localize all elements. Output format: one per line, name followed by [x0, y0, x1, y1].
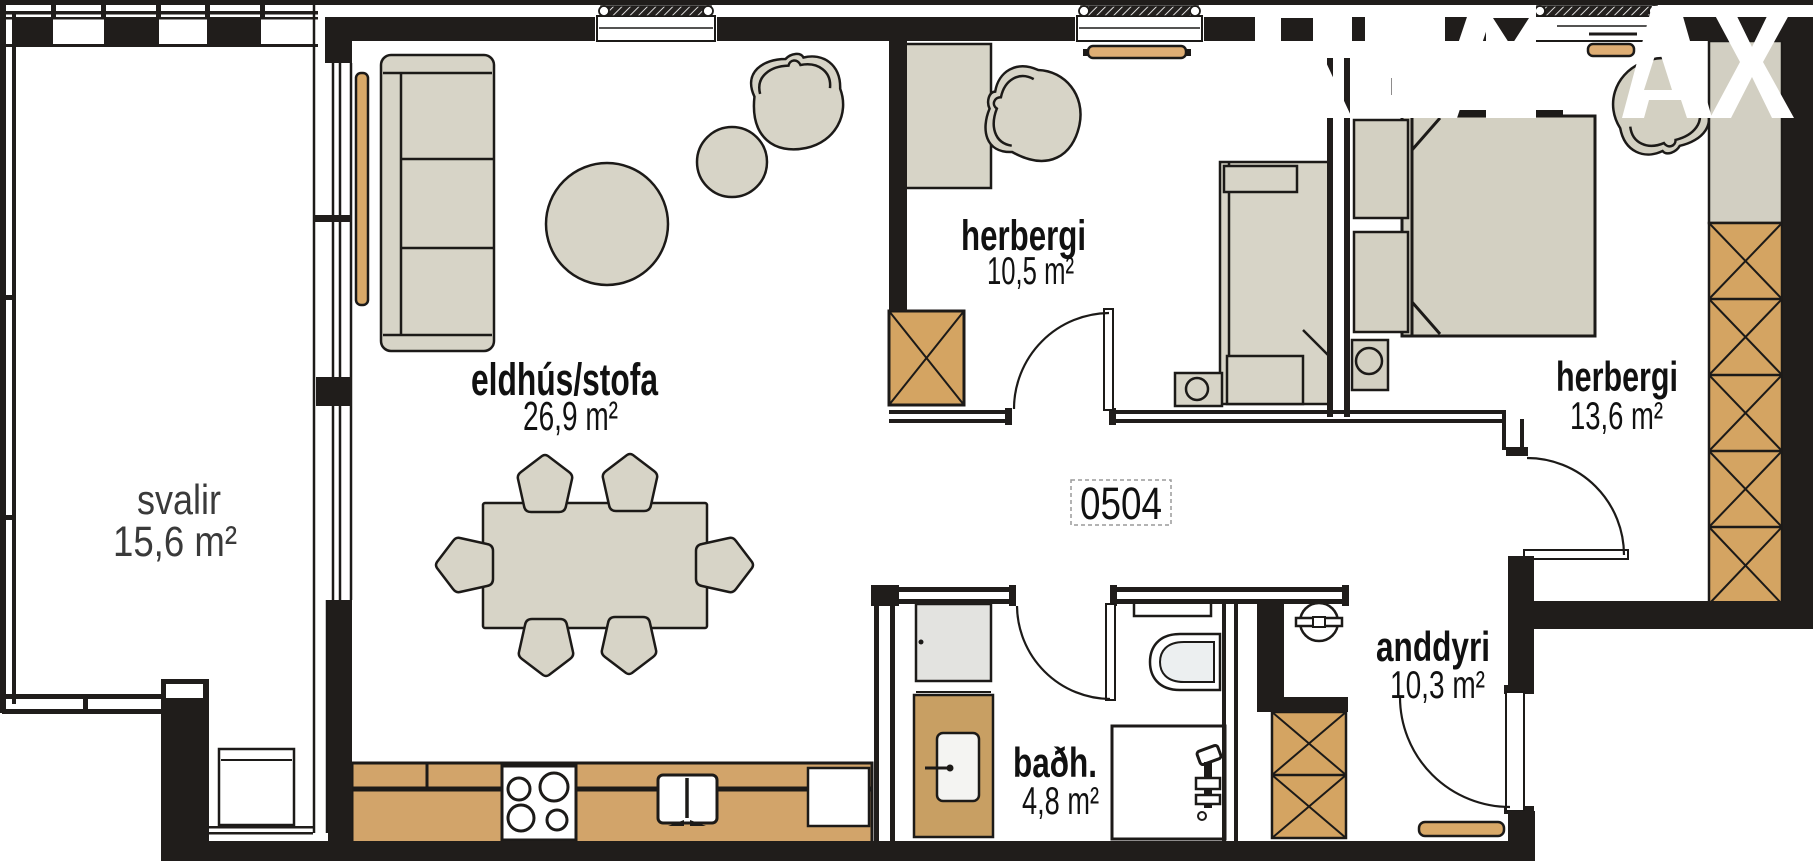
svg-text:0504: 0504 — [1080, 478, 1162, 529]
svg-text:10,5 m²: 10,5 m² — [987, 250, 1074, 293]
svg-text:13,6 m²: 13,6 m² — [1570, 395, 1663, 438]
svg-text:anddyri: anddyri — [1376, 623, 1490, 670]
svg-text:10,3 m²: 10,3 m² — [1390, 664, 1485, 707]
svg-text:15,6 m²: 15,6 m² — [113, 518, 237, 566]
svg-text:baðh.: baðh. — [1013, 739, 1097, 786]
svg-text:26,9 m²: 26,9 m² — [523, 393, 618, 439]
svg-text:herbergi: herbergi — [1556, 353, 1678, 400]
svg-text:svalir: svalir — [137, 476, 221, 523]
svg-text:4,8 m²: 4,8 m² — [1022, 780, 1099, 823]
